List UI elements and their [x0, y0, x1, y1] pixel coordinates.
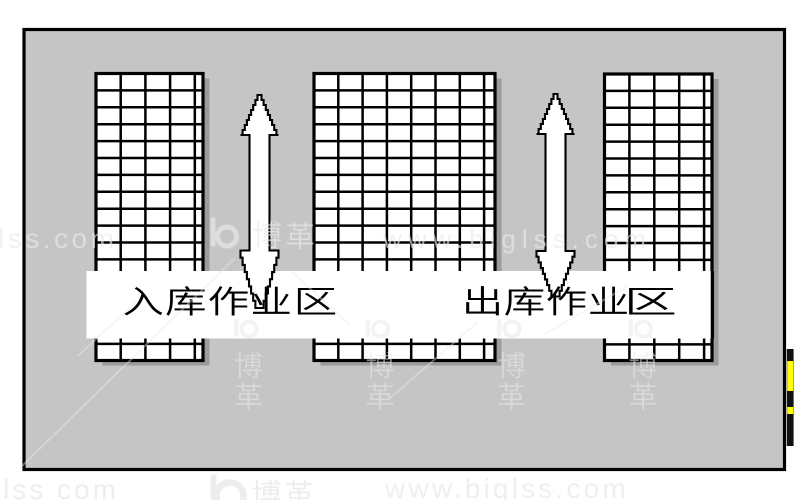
svg-text:lss.com: lss.com	[0, 223, 117, 254]
svg-text:lss com: lss com	[3, 474, 119, 500]
svg-text:www.biglss.com: www.biglss.com	[384, 473, 629, 500]
svg-text:www.biglss.com: www.biglss.com	[382, 224, 652, 254]
